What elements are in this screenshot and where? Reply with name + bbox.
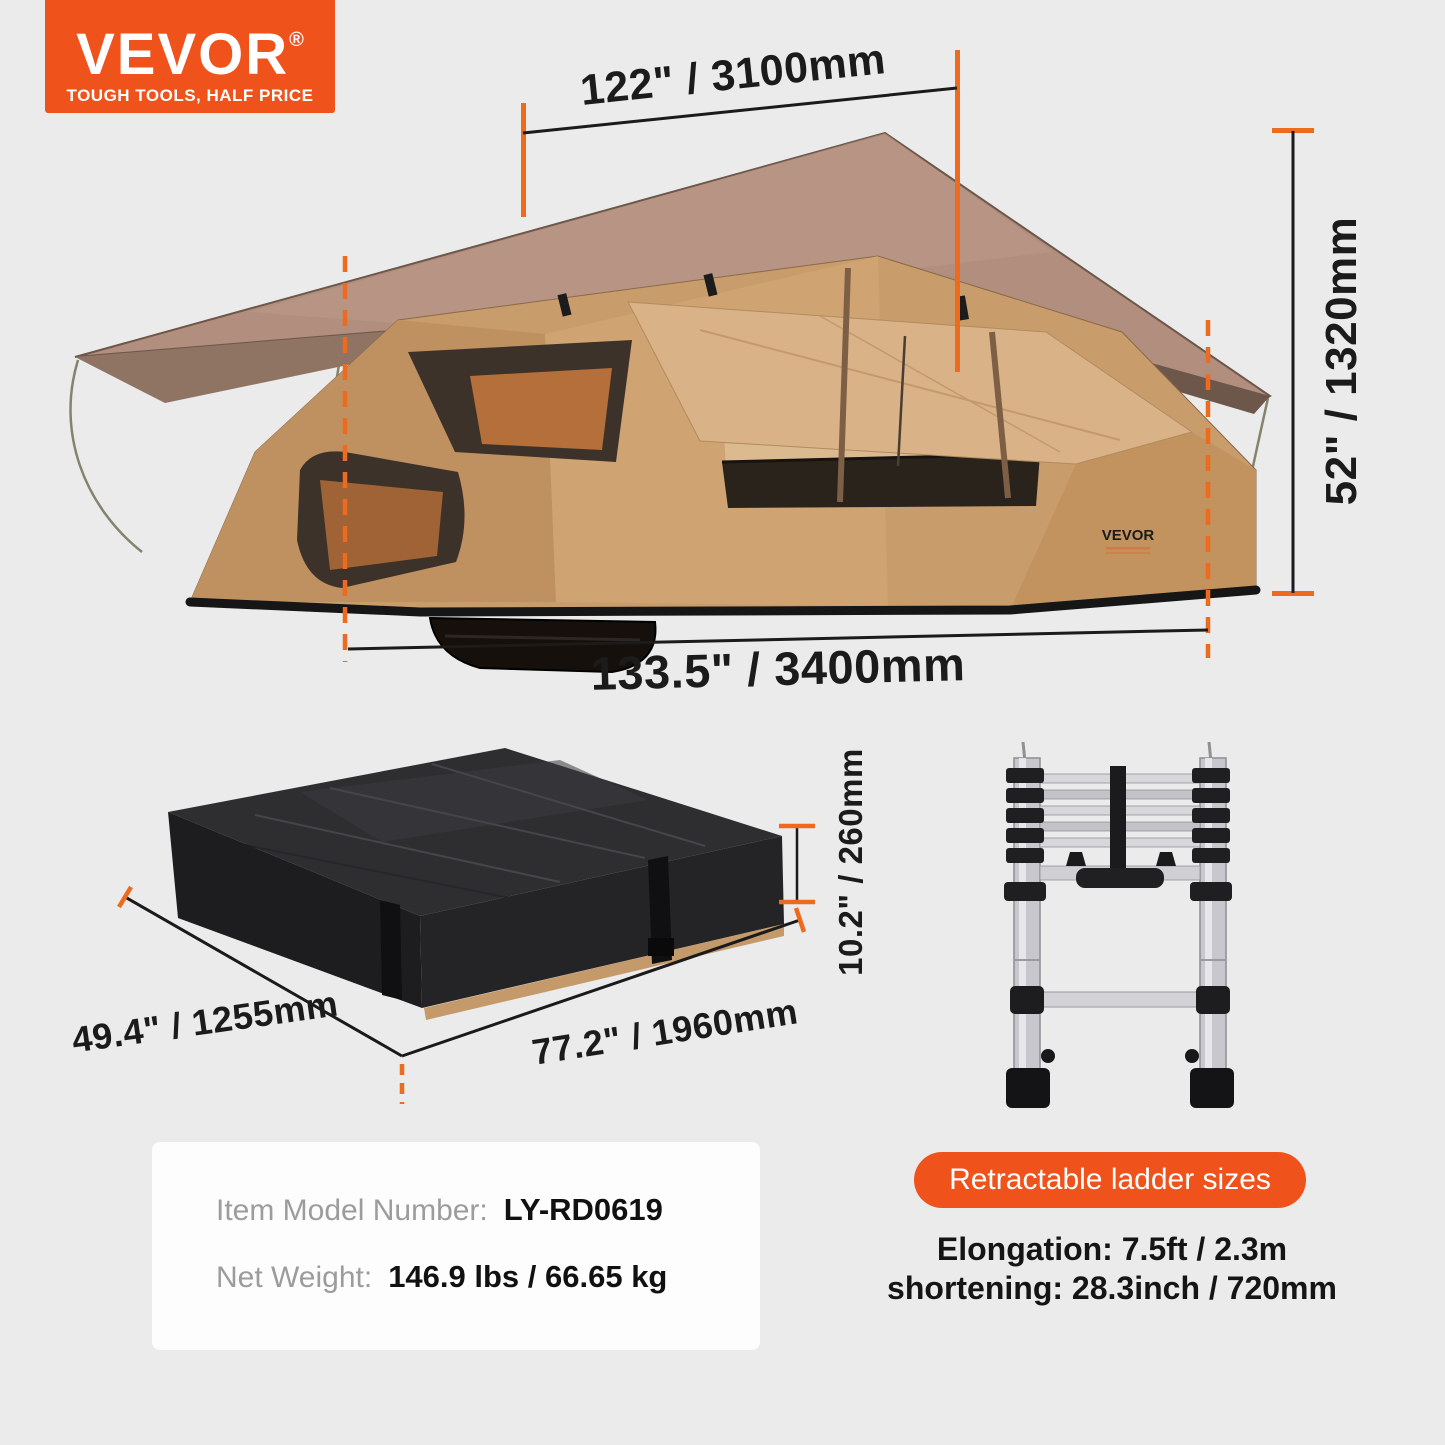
model-number-label: Item Model Number: — [216, 1194, 488, 1228]
tent-left-window-interior — [320, 480, 443, 570]
tent-fabric-logo: VEVOR — [1102, 527, 1155, 544]
ladder-shortening: shortening: 28.3inch / 720mm — [812, 1269, 1412, 1308]
ladder-knob — [1185, 1049, 1199, 1063]
ladder-rail-right — [1200, 758, 1226, 1076]
crossbar-clamp — [1010, 986, 1044, 1014]
net-weight-row: Net Weight: 146.9 lbs / 66.65 kg — [216, 1259, 760, 1295]
registered-mark: ® — [289, 29, 304, 51]
ladder-sizes-text: Elongation: 7.5ft / 2.3m shortening: 28.… — [812, 1230, 1412, 1308]
brand-tagline: TOUGH TOOLS, HALF PRICE — [45, 86, 335, 106]
rooftop-tent-illustration: VEVOR — [71, 133, 1270, 672]
tent-width-label: 122" / 3100mm — [578, 35, 888, 115]
net-weight-value: 146.9 lbs / 66.65 kg — [388, 1259, 667, 1295]
ladder-rail-left — [1014, 758, 1040, 1076]
dimension-tick — [119, 887, 131, 907]
package-width-label: 49.4" / 1255mm — [69, 983, 340, 1061]
package-strap — [380, 900, 402, 1000]
rung-peg — [1156, 852, 1176, 866]
tent-dimension-height: 52" / 1320mm — [1272, 128, 1366, 596]
package-buckle — [648, 938, 674, 956]
ladder-elongation: Elongation: 7.5ft / 2.3m — [812, 1230, 1412, 1269]
ladder-foot — [1006, 1068, 1050, 1108]
fabric-logo-line — [1106, 552, 1150, 554]
packed-tent-illustration — [168, 748, 784, 1020]
guy-line — [71, 360, 142, 552]
rail-highlight — [1205, 758, 1212, 1076]
ladder-illustration — [1004, 742, 1234, 1108]
ladder-knob — [1041, 1049, 1055, 1063]
model-number-value: LY-RD0619 — [504, 1192, 663, 1228]
package-length-label: 77.2" / 1960mm — [529, 990, 800, 1072]
ladder-handle — [1076, 868, 1164, 888]
ladder-foot — [1190, 1068, 1234, 1108]
spec-box: Item Model Number: LY-RD0619 Net Weight:… — [152, 1142, 760, 1350]
tent-height-label: 52" / 1320mm — [1317, 217, 1366, 506]
net-weight-label: Net Weight: — [216, 1261, 372, 1295]
tent-length-label: 133.5" / 3400mm — [590, 637, 966, 700]
brand-name: VEVOR® — [45, 10, 335, 85]
vevor-logo: VEVOR® TOUGH TOOLS, HALF PRICE — [45, 0, 335, 113]
brand-text: VEVOR — [76, 22, 289, 87]
rung-peg — [1066, 852, 1086, 866]
dimension-tick — [521, 103, 526, 217]
package-height-label: 10.2" / 260mm — [832, 748, 869, 976]
fabric-logo-line — [1106, 547, 1150, 550]
ladder-crossbar — [1036, 992, 1204, 1007]
model-number-row: Item Model Number: LY-RD0619 — [216, 1192, 760, 1228]
ladder-sizes-badge: Retractable ladder sizes — [914, 1152, 1306, 1208]
dimension-tick — [955, 50, 960, 372]
ladder-strap — [1110, 766, 1126, 878]
rail-highlight — [1019, 758, 1026, 1076]
product-infographic: VEVOR 122" / 3100mm 52" / 1320mm 133.5" … — [0, 0, 1445, 1445]
tent-upper-window-interior — [470, 368, 612, 450]
crossbar-clamp — [1196, 986, 1230, 1014]
